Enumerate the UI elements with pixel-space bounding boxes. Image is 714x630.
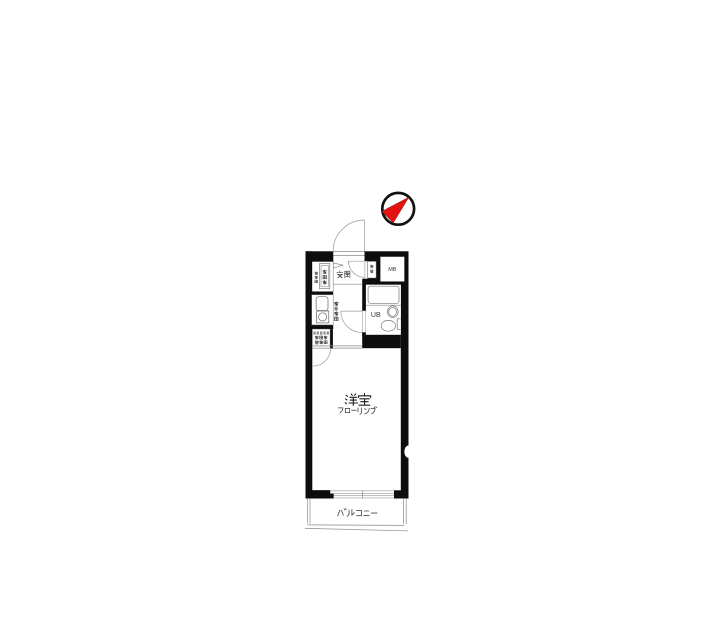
svg-text:MB: MB	[388, 267, 397, 273]
svg-text:UB: UB	[371, 312, 381, 319]
